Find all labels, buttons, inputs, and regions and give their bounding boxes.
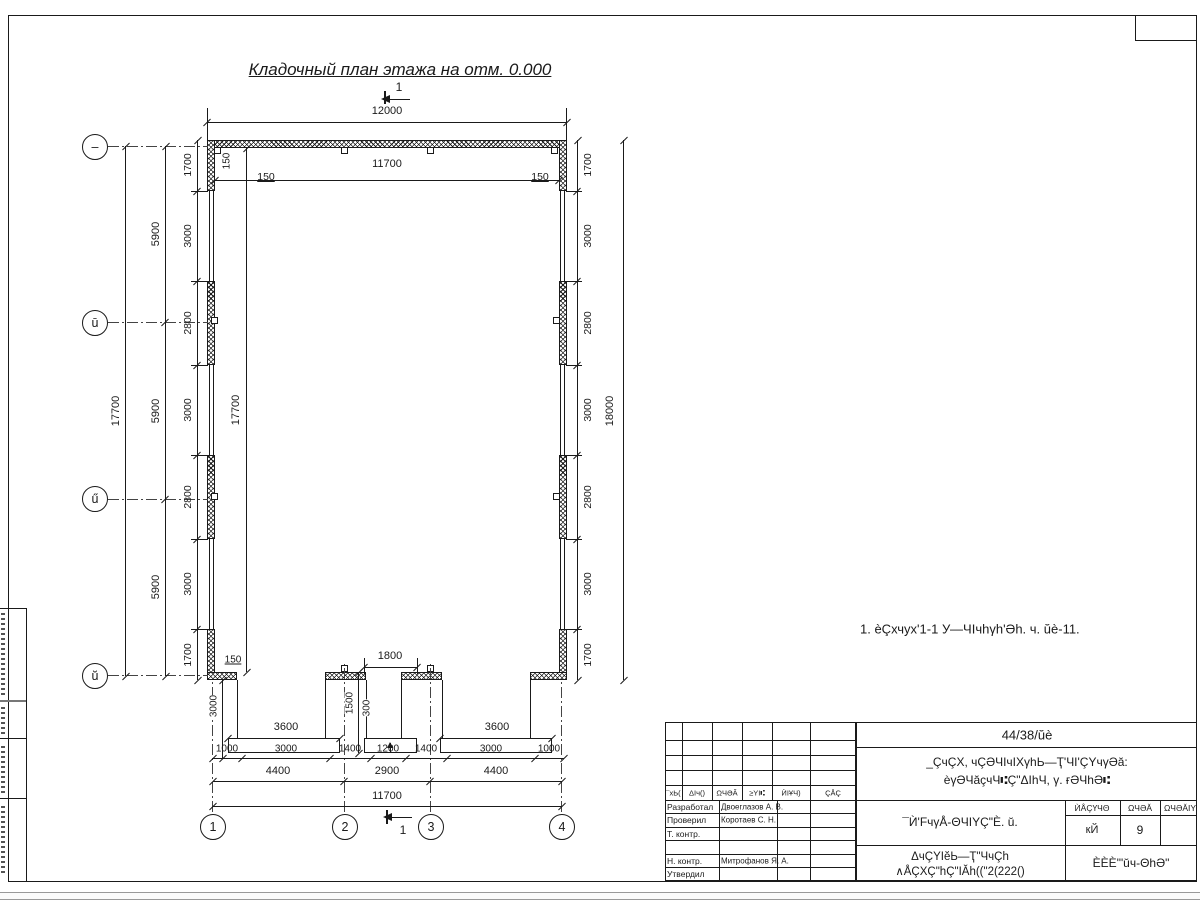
dim-text: 3000 (182, 572, 194, 595)
dim-line (358, 672, 359, 753)
tb-line (712, 722, 713, 800)
dim-text: 1800 (378, 650, 402, 662)
window-right (560, 365, 565, 455)
tb-line (1120, 800, 1121, 845)
embed-square (214, 147, 221, 154)
left-stamp-div (0, 798, 26, 799)
window-left (209, 365, 214, 455)
window-right (560, 191, 565, 281)
dim-text: 3000 (182, 398, 194, 421)
tb-line (665, 800, 1197, 801)
jamb-line (442, 680, 443, 738)
stage-col-header: ЍÅÇҮЧΘ (1075, 803, 1110, 813)
axis-circle-row-3: ű (82, 486, 108, 512)
axis-label: ū (92, 316, 99, 330)
tb-line (742, 722, 743, 800)
tb-line (665, 840, 855, 841)
wall-bottom-seg (530, 672, 567, 680)
tb-col-header: ¯хЬ( (665, 789, 680, 798)
dim-text: 300 (362, 700, 373, 717)
dim-line (213, 806, 562, 807)
stage-col-header: ΩЧƏĂIY (1164, 803, 1196, 813)
wall-bottom-pier (325, 672, 366, 680)
tb-line (810, 722, 811, 881)
left-stamp-div (0, 608, 26, 609)
dim-line (364, 667, 417, 668)
section-arrow-icon (377, 95, 390, 103)
tb-line (777, 800, 778, 881)
axis-label: 4 (559, 820, 566, 834)
dim-text: 150 (224, 655, 243, 666)
left-stamp-text (1, 743, 5, 793)
dim-text: 17700 (230, 395, 242, 426)
axis-line-col (344, 664, 345, 812)
left-stamp-text (1, 803, 5, 873)
dim-text: 1000 (538, 744, 560, 755)
doc-number: 44/38/ŭè (1002, 728, 1053, 743)
role-label: Проверил (667, 815, 706, 825)
tb-col-header: ≥YI⑆ (749, 789, 765, 798)
dim-text: 150 (257, 171, 275, 183)
tb-col-header: ΔIч() (689, 789, 705, 798)
axis-label: ű (92, 492, 99, 506)
tb-col-header: ΩЧƏĂ (716, 789, 737, 798)
dim-text: 1700 (582, 153, 594, 176)
tb-line (1160, 800, 1161, 845)
jamb-line (530, 680, 531, 738)
ext-line (191, 629, 208, 630)
project-name-line1: _ÇчÇX, чÇƏЧIчIXγhЬ—Ҭ'ЧI'ÇYчγƏă: (926, 755, 1128, 769)
wall-top (207, 140, 567, 148)
axis-label: – (92, 140, 99, 154)
dim-text: 3000 (275, 744, 297, 755)
tb-line (665, 827, 855, 828)
dim-line (440, 738, 552, 739)
dim-line (577, 140, 578, 680)
window-right (560, 539, 565, 629)
dim-text: 11700 (372, 790, 402, 802)
wall-right-seg (559, 281, 567, 365)
left-stamp-line (26, 608, 27, 881)
ext-line (191, 281, 208, 282)
axis-line-col (430, 664, 431, 812)
frame-bottom (8, 881, 1197, 882)
dim-text: 1700 (582, 643, 594, 666)
tb-line (1065, 815, 1197, 816)
tb-line (855, 722, 857, 881)
dim-text: 3000 (182, 224, 194, 247)
tb-line (719, 800, 720, 881)
axis-circle-1: 1 (200, 814, 226, 840)
dim-text: 3600 (485, 721, 509, 733)
note-text: 1. èÇхчух'1-1 У—ЧIчhγh'Əh. ч. ŭè-11. (860, 622, 1080, 637)
corner-format-box (1135, 15, 1197, 41)
section-arrow-icon (379, 813, 392, 821)
role-label: Т. контр. (667, 829, 700, 839)
embed-square (341, 147, 348, 154)
horizontal-scrollbar[interactable] (0, 892, 1200, 900)
tb-line (682, 722, 683, 800)
frame-left (8, 15, 9, 882)
role-name: Двоеглазов А. В. (721, 803, 783, 812)
wall-bottom-pier (401, 672, 442, 680)
axis-label: 3 (428, 820, 435, 834)
tb-line (665, 770, 855, 771)
dim-line (197, 140, 198, 680)
left-stamp-div (0, 700, 26, 702)
left-stamp-text (1, 704, 5, 734)
wall-right-seg (559, 140, 567, 191)
dim-text: 2800 (582, 311, 594, 334)
axis-label: 2 (342, 820, 349, 834)
dim-line (246, 148, 247, 672)
dim-text: 1000 (216, 744, 238, 755)
window-left (209, 191, 214, 281)
axis-line-row (108, 675, 208, 676)
dim-text: 2800 (182, 311, 194, 334)
doc-type-line2: ∧ÅÇXÇ"hÇ"IĂh(("2(222() (895, 864, 1024, 878)
section-label: 1 (396, 80, 403, 94)
embed-square (553, 493, 560, 500)
axis-circle-3: 3 (418, 814, 444, 840)
left-stamp-div (0, 738, 26, 739)
window-left (209, 539, 214, 629)
dim-text: 3000 (582, 572, 594, 595)
dim-text: 12000 (372, 105, 403, 117)
axis-circle-row-2: ū (82, 310, 108, 336)
dim-text: 2900 (375, 765, 399, 777)
stage-col-header: ΩЧƏĂ (1128, 803, 1152, 813)
ext-line (207, 108, 208, 140)
axis-circle-row-4: ŭ (82, 663, 108, 689)
tb-line (665, 755, 855, 756)
dim-text: 18000 (604, 396, 616, 427)
sheet-number: 9 (1137, 823, 1144, 837)
tb-line (857, 845, 1197, 846)
role-label: Н. контр. (667, 856, 702, 866)
dim-line (125, 146, 126, 676)
tb-line (665, 785, 855, 786)
doc-type-line1: ΔчÇΥIĕЬ—Ҭ"ЧчÇh (911, 851, 1009, 863)
dim-line (213, 758, 564, 759)
ext-line (191, 191, 208, 192)
embed-square (553, 317, 560, 324)
role-label: Разработал (667, 802, 713, 812)
frame-top (8, 15, 1197, 16)
tb-line (772, 722, 773, 800)
role-name: Митрофанов Я. А. (721, 857, 789, 866)
axis-line-col (561, 682, 562, 812)
axis-label: 1 (210, 820, 217, 834)
dim-line (228, 738, 340, 739)
dim-text: 3000 (582, 224, 594, 247)
dim-text: 1700 (182, 643, 194, 666)
left-stamp-text (1, 613, 5, 695)
dim-text: 150 (222, 153, 233, 170)
dim-text: 4400 (266, 765, 290, 777)
dim-text: 17700 (110, 396, 122, 427)
tb-line (857, 747, 1197, 748)
stage-value: кЙ (1086, 824, 1099, 836)
dim-line (207, 122, 567, 123)
dim-text: 3600 (274, 721, 298, 733)
dim-text: 5900 (150, 222, 162, 246)
dim-line (213, 781, 562, 782)
dim-text: 2800 (182, 485, 194, 508)
axis-label: ŭ (92, 669, 99, 683)
ext-line (191, 455, 208, 456)
axis-circle-row-1: – (82, 134, 108, 160)
jamb-line (325, 680, 326, 738)
role-label: Утвердил (667, 869, 705, 879)
page-title: Кладочный план этажа на отм. 0.000 (249, 60, 552, 80)
embed-square (551, 147, 558, 154)
ext-line (191, 365, 208, 366)
dim-text: 4400 (484, 765, 508, 777)
dim-line (165, 146, 166, 676)
dim-text: 150 (531, 171, 549, 183)
dim-text: 5900 (150, 399, 162, 423)
embed-square (211, 317, 218, 324)
dim-text: 3000 (480, 744, 502, 755)
section-label: 1 (400, 823, 407, 837)
jamb-line (237, 680, 238, 738)
dim-text: 1500 (345, 692, 356, 714)
wall-right-seg (559, 455, 567, 539)
tb-line (665, 867, 855, 868)
dim-text: 11700 (372, 158, 402, 170)
dim-text: 1200 (377, 744, 399, 755)
embed-square (427, 147, 434, 154)
tb-col-header: ЍIҰЧ) (781, 789, 800, 798)
project-name-line2: èγƏЧăçчЧ⑆Ç"ΔIhЧ, γ. ғƏЧhƏ⑆ (944, 773, 1110, 787)
tb-line (1065, 800, 1066, 881)
dim-line (623, 140, 624, 680)
jamb-line (401, 680, 402, 738)
tb-line (665, 813, 855, 814)
ext-line (191, 539, 208, 540)
dim-text: 3000 (209, 695, 220, 717)
tb-col-header: ÇÅÇ (825, 789, 841, 798)
tb-line (665, 854, 855, 855)
dim-text: 1400 (415, 744, 437, 755)
dim-text: 2800 (582, 485, 594, 508)
tb-line (665, 740, 855, 741)
axis-circle-2: 2 (332, 814, 358, 840)
role-name: Коротаев С. Н. (721, 816, 776, 825)
drawing-sheet: Кладочный план этажа на отм. 0.000 1 (0, 0, 1200, 900)
embed-square (211, 493, 218, 500)
dim-text: 3000 (582, 398, 594, 421)
sheet-title: ¯Ѝ'FчγÅ-ΘЧIYÇ"È. ŭ. (902, 815, 1017, 829)
dim-text: 1400 (339, 744, 361, 755)
dim-text: 1700 (182, 153, 194, 176)
axis-circle-4: 4 (549, 814, 575, 840)
dim-text: 5900 (150, 575, 162, 599)
company-name: ÈÈÈ'"ŭч-ΘhƏ" (1093, 856, 1170, 870)
